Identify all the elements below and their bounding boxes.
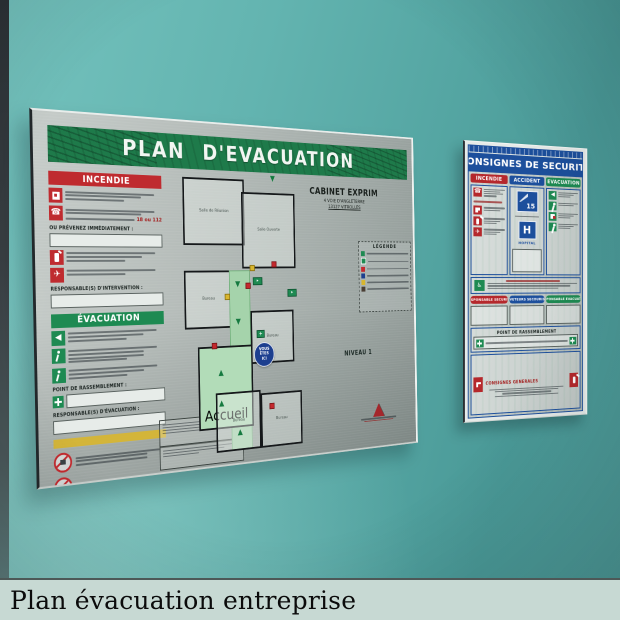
consignes-inner: CONSIGNES DE SECURITE INCENDIE ☎ [468,144,583,418]
consignes-generales-band: CONSIGNES GENERALES [471,351,581,416]
maker-logo [360,402,398,424]
incendie-instruction-row: ✈ [50,267,163,283]
consigne-row [549,201,578,211]
caption-text: Plan évacuation entreprise [0,586,356,615]
hospital-sign: H [518,221,536,240]
responsables-write-in-boxes [471,305,581,326]
pill-sauveteurs: SAUVETEURS SECOURISTES [509,296,544,304]
site-identity: CABINET EXPRIM 4 VOIE D'ANGLETERRE 13127… [304,186,383,211]
instruction-text-lines [65,188,162,204]
room-meeting: Salle de Réunion [182,177,245,246]
consigne-row [473,217,504,227]
evacuation-column-header: EVACUATION [546,177,580,187]
caption-bar: Plan évacuation entreprise [0,578,620,620]
column-evacuation: EVACUATION ◀ [546,177,580,275]
instruction-text-lines [66,250,163,263]
instruction-text-lines [68,343,164,364]
legend-row [361,258,408,265]
accident-write-in-box [512,249,542,273]
accident-column-header: ACCIDENT [509,175,544,186]
assembly-run-icon [549,222,557,231]
logo-triangle-icon [373,403,385,417]
legend-title: LÉGENDE [361,244,408,250]
evacuate-smoke-icon: ✈ [473,228,481,237]
rassemblement-box [473,334,578,350]
exit-arrow-icon: ▼ [270,176,275,184]
consigne-row: ✈ [473,228,504,238]
assembly-point-icon [569,337,576,345]
column-accident: ACCIDENT 15 H HOPITAL [509,175,544,275]
exit-sign-marker: ▸ [287,289,296,297]
legend-row [361,273,408,278]
extinguisher-icon [569,373,578,388]
wall-corner-shadow [0,0,9,578]
consigne-row: ☎ [473,187,504,198]
samu-15-sign: 15 [516,190,537,212]
pill-responsable-securite: RESPONSABLE SECURITE [471,296,508,304]
hospital-label: HOPITAL [512,241,542,245]
generales-title: CONSIGNES GENERALES [486,378,539,385]
alarm-sound-icon: ◀ [51,331,65,346]
write-in-box [546,305,580,325]
extinguisher-icon [50,250,64,265]
alarm-hand-icon [473,377,482,392]
write-in-box [509,305,544,325]
extinguisher-marker [245,283,250,289]
route-arrow-icon: ▲ [238,429,243,438]
assembly-point-icon [53,395,64,408]
route-arrow-icon: ▲ [219,400,224,409]
incendie-section-header: INCENDIE [48,171,161,189]
legend-row [361,279,408,285]
extinguisher-marker [212,343,217,350]
incendie-instruction-row [50,250,163,265]
phone-icon: ☎ [473,187,481,196]
legend-firstaid-icon [361,258,366,265]
you-are-here-marker: VOUS ÊTES ICI [254,342,275,368]
instruction-text-lines [67,267,163,277]
fire-alarm-button-icon [49,188,63,203]
alarm-sound-icon: ◀ [549,190,557,199]
legend-row [361,266,408,271]
evacuation-plan-board: PLAN D'EVACUATION INCENDIE ☎ 18 ou 112 O… [29,108,418,490]
evacuate-stairs-icon [52,348,66,364]
floor-plan: Salle de Réunion Salle Ouverte Bureau Ac… [181,175,317,459]
first-aid-marker: + [257,330,265,338]
consignes-columns: INCENDIE ☎ ✈ [469,171,583,277]
consigne-row [549,222,578,231]
exit-route-icon [52,368,66,384]
responsable-write-in-box [51,292,164,308]
exit-sign-marker: ▸ [253,277,263,285]
instructions-column: INCENDIE ☎ 18 ou 112 OU PRÉVENEZ IMMÉDIA… [48,171,167,490]
column-incendie: INCENDIE ☎ ✈ [471,173,508,275]
incendie-instruction-row [49,188,162,206]
rassemblement-band: POINT DE RASSEMBLEMENT [471,326,581,353]
legend-row [361,251,408,256]
prohibition-text-lines [76,445,167,468]
room-office: Bureau [261,390,303,448]
site-address-line: 13127 VITROLLES [304,204,383,211]
legend-alarm-icon [361,280,365,285]
responsable-intervention-label: RESPONSABLE(S) D'INTERVENTION : [50,285,163,293]
instruction-text-lines [68,362,164,381]
legend-exit-icon [361,251,365,256]
alarm-marker [225,294,230,300]
exit-person-icon [549,201,557,210]
plan-title-band: PLAN D'EVACUATION [47,125,407,180]
prevenez-label: OU PRÉVENEZ IMMÉDIATEMENT : [49,225,162,232]
incendie-column-header: INCENDIE [471,173,508,184]
accident-column-body: 15 H HOPITAL [509,186,544,276]
no-elevator-icon [54,452,73,474]
instruction-text-lines [68,327,164,344]
legend-you-are-here-icon [361,273,365,278]
instruction-text-lines: 18 ou 112 [65,206,162,223]
consignes-securite-board: CONSIGNES DE SECURITE INCENDIE ☎ [463,140,587,423]
incendie-instruction-row: ☎ 18 ou 112 [49,205,162,223]
wheelchair-icon: ♿ [474,280,484,291]
consigne-row [473,206,504,216]
route-arrow-icon: ▼ [236,318,241,326]
extinguisher-marker [270,403,275,410]
stairs-icon [549,212,557,221]
incendie-column-body: ☎ ✈ [471,184,508,276]
legend-box: LÉGENDE [358,241,411,312]
assembly-point-icon [476,339,483,347]
legend-route-icon [361,287,365,292]
consigne-row [549,212,578,222]
plan-title: PLAN D'EVACUATION [122,135,355,172]
evacuation-column-body: ◀ [546,187,580,275]
pill-responsable-evacuation: RESPONSABLE EVACUATION [546,296,580,304]
phone-icon: ☎ [49,205,63,220]
alarm-marker [250,265,255,271]
level-label: NIVEAU 1 [344,348,372,357]
special-service-band: ♿ [471,277,581,294]
extinguisher-marker [271,261,276,267]
fire-alarm-button-icon [473,206,481,215]
room-open-space: Salle Ouverte [241,192,296,269]
contact-write-in-box [49,233,162,247]
consigne-row: ◀ [549,190,578,200]
route-arrow-icon: ▲ [218,369,223,377]
evacuation-instruction-row: ◀ [51,327,164,346]
legend-extinguisher-icon [361,266,365,271]
emergency-numbers: 18 ou 112 [137,217,162,223]
write-in-box [471,306,508,326]
route-arrow-icon: ▼ [235,281,240,289]
smoke-crawl-icon: ✈ [50,268,64,283]
extinguisher-icon [473,217,481,226]
evacuation-section-header: ÉVACUATION [51,311,164,328]
responsables-pills: RESPONSABLE SECURITE SAUVETEURS SECOURIS… [471,296,581,305]
legend-row [361,286,408,292]
